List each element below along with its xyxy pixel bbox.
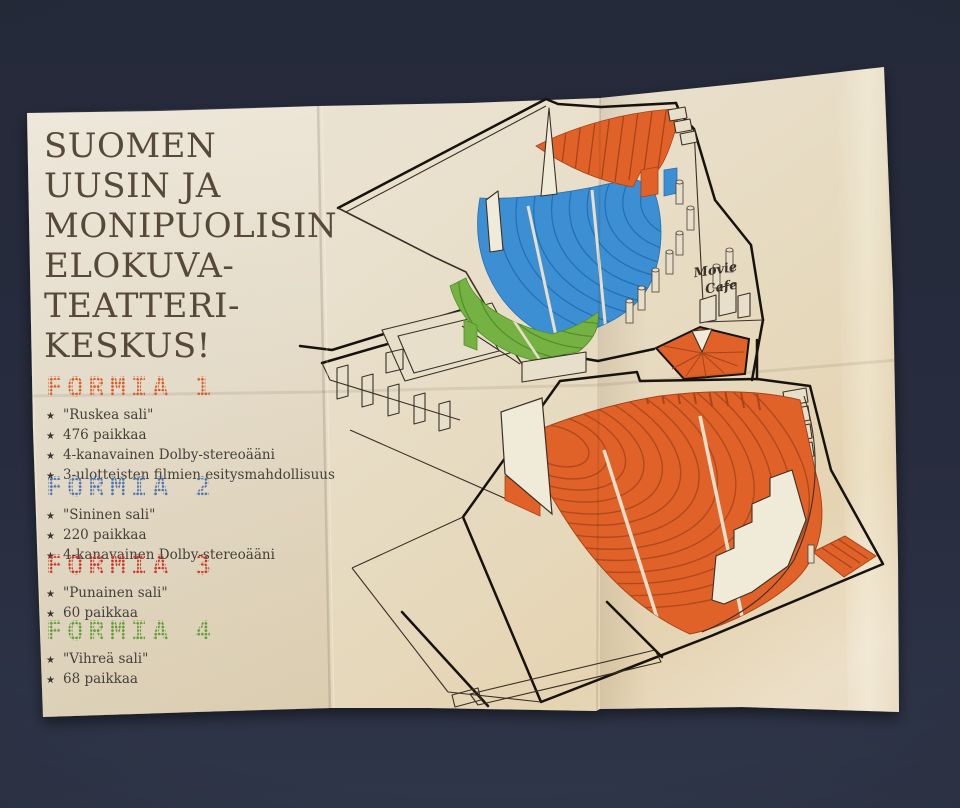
formia-2-heading: FORMIA 2 (46, 474, 216, 502)
title-line: ELOKUVA- (44, 246, 344, 286)
title-line: KESKUS! (44, 326, 344, 366)
bullet-text: "Punainen sali" (63, 584, 168, 602)
list-item: ★4-kanavainen Dolby-stereoääni (46, 446, 356, 466)
bullet-text: 476 paikkaa (63, 426, 147, 444)
green-door-panel (464, 320, 477, 350)
list-item: ★"Sininen sali" (46, 506, 356, 526)
bullet-text: "Sininen sali" (63, 506, 155, 524)
star-bullet-icon: ★ (46, 528, 63, 546)
formia-4-heading: FORMIA 4 (46, 618, 216, 646)
star-bullet-icon: ★ (46, 586, 63, 604)
list-item: ★220 paikkaa (46, 526, 356, 546)
formia-4-section: FORMIA 4 ★"Vihreä sali" ★68 paikkaa (46, 618, 356, 690)
bullet-text: 68 paikkaa (63, 670, 138, 688)
title-line: MONIPUOLISIN (44, 206, 344, 246)
orange-wall-panel (641, 167, 658, 197)
formia-1-heading: FORMIA 1 (46, 374, 216, 402)
star-bullet-icon: ★ (46, 508, 63, 526)
list-item: ★68 paikkaa (46, 670, 356, 690)
list-item: ★"Punainen sali" (46, 584, 356, 604)
title-line: SUOMEN (44, 126, 344, 166)
poster-title: SUOMEN UUSIN JA MONIPUOLISIN ELOKUVA- TE… (44, 126, 344, 366)
formia-4-list: ★"Vihreä sali" ★68 paikkaa (46, 650, 356, 690)
list-item: ★476 paikkaa (46, 426, 356, 446)
blue-wall-panel (664, 168, 677, 196)
bullet-text: 4-kanavainen Dolby-stereoääni (63, 446, 275, 464)
title-line: TEATTERI- (44, 286, 344, 326)
star-bullet-icon: ★ (46, 672, 63, 690)
bullet-text: "Vihreä sali" (63, 650, 148, 668)
formia-1-section: FORMIA 1 ★"Ruskea sali" ★476 paikkaa ★4-… (46, 374, 356, 486)
star-bullet-icon: ★ (46, 448, 63, 466)
bullet-text: 220 paikkaa (63, 526, 147, 544)
list-item: ★"Ruskea sali" (46, 406, 356, 426)
star-bullet-icon: ★ (46, 408, 63, 426)
bullet-text: "Ruskea sali" (63, 406, 153, 424)
photo-of-brochure-on-table: Movie Cafe SUOMEN UUSIN JA MONIPUOLISIN … (0, 0, 960, 808)
formia-3-heading: FORMIA 3 (46, 552, 216, 580)
formia-3-section: FORMIA 3 ★"Punainen sali" ★60 paikkaa (46, 552, 356, 624)
star-bullet-icon: ★ (46, 652, 63, 670)
list-item: ★"Vihreä sali" (46, 650, 356, 670)
title-line: UUSIN JA (44, 166, 344, 206)
star-bullet-icon: ★ (46, 428, 63, 446)
